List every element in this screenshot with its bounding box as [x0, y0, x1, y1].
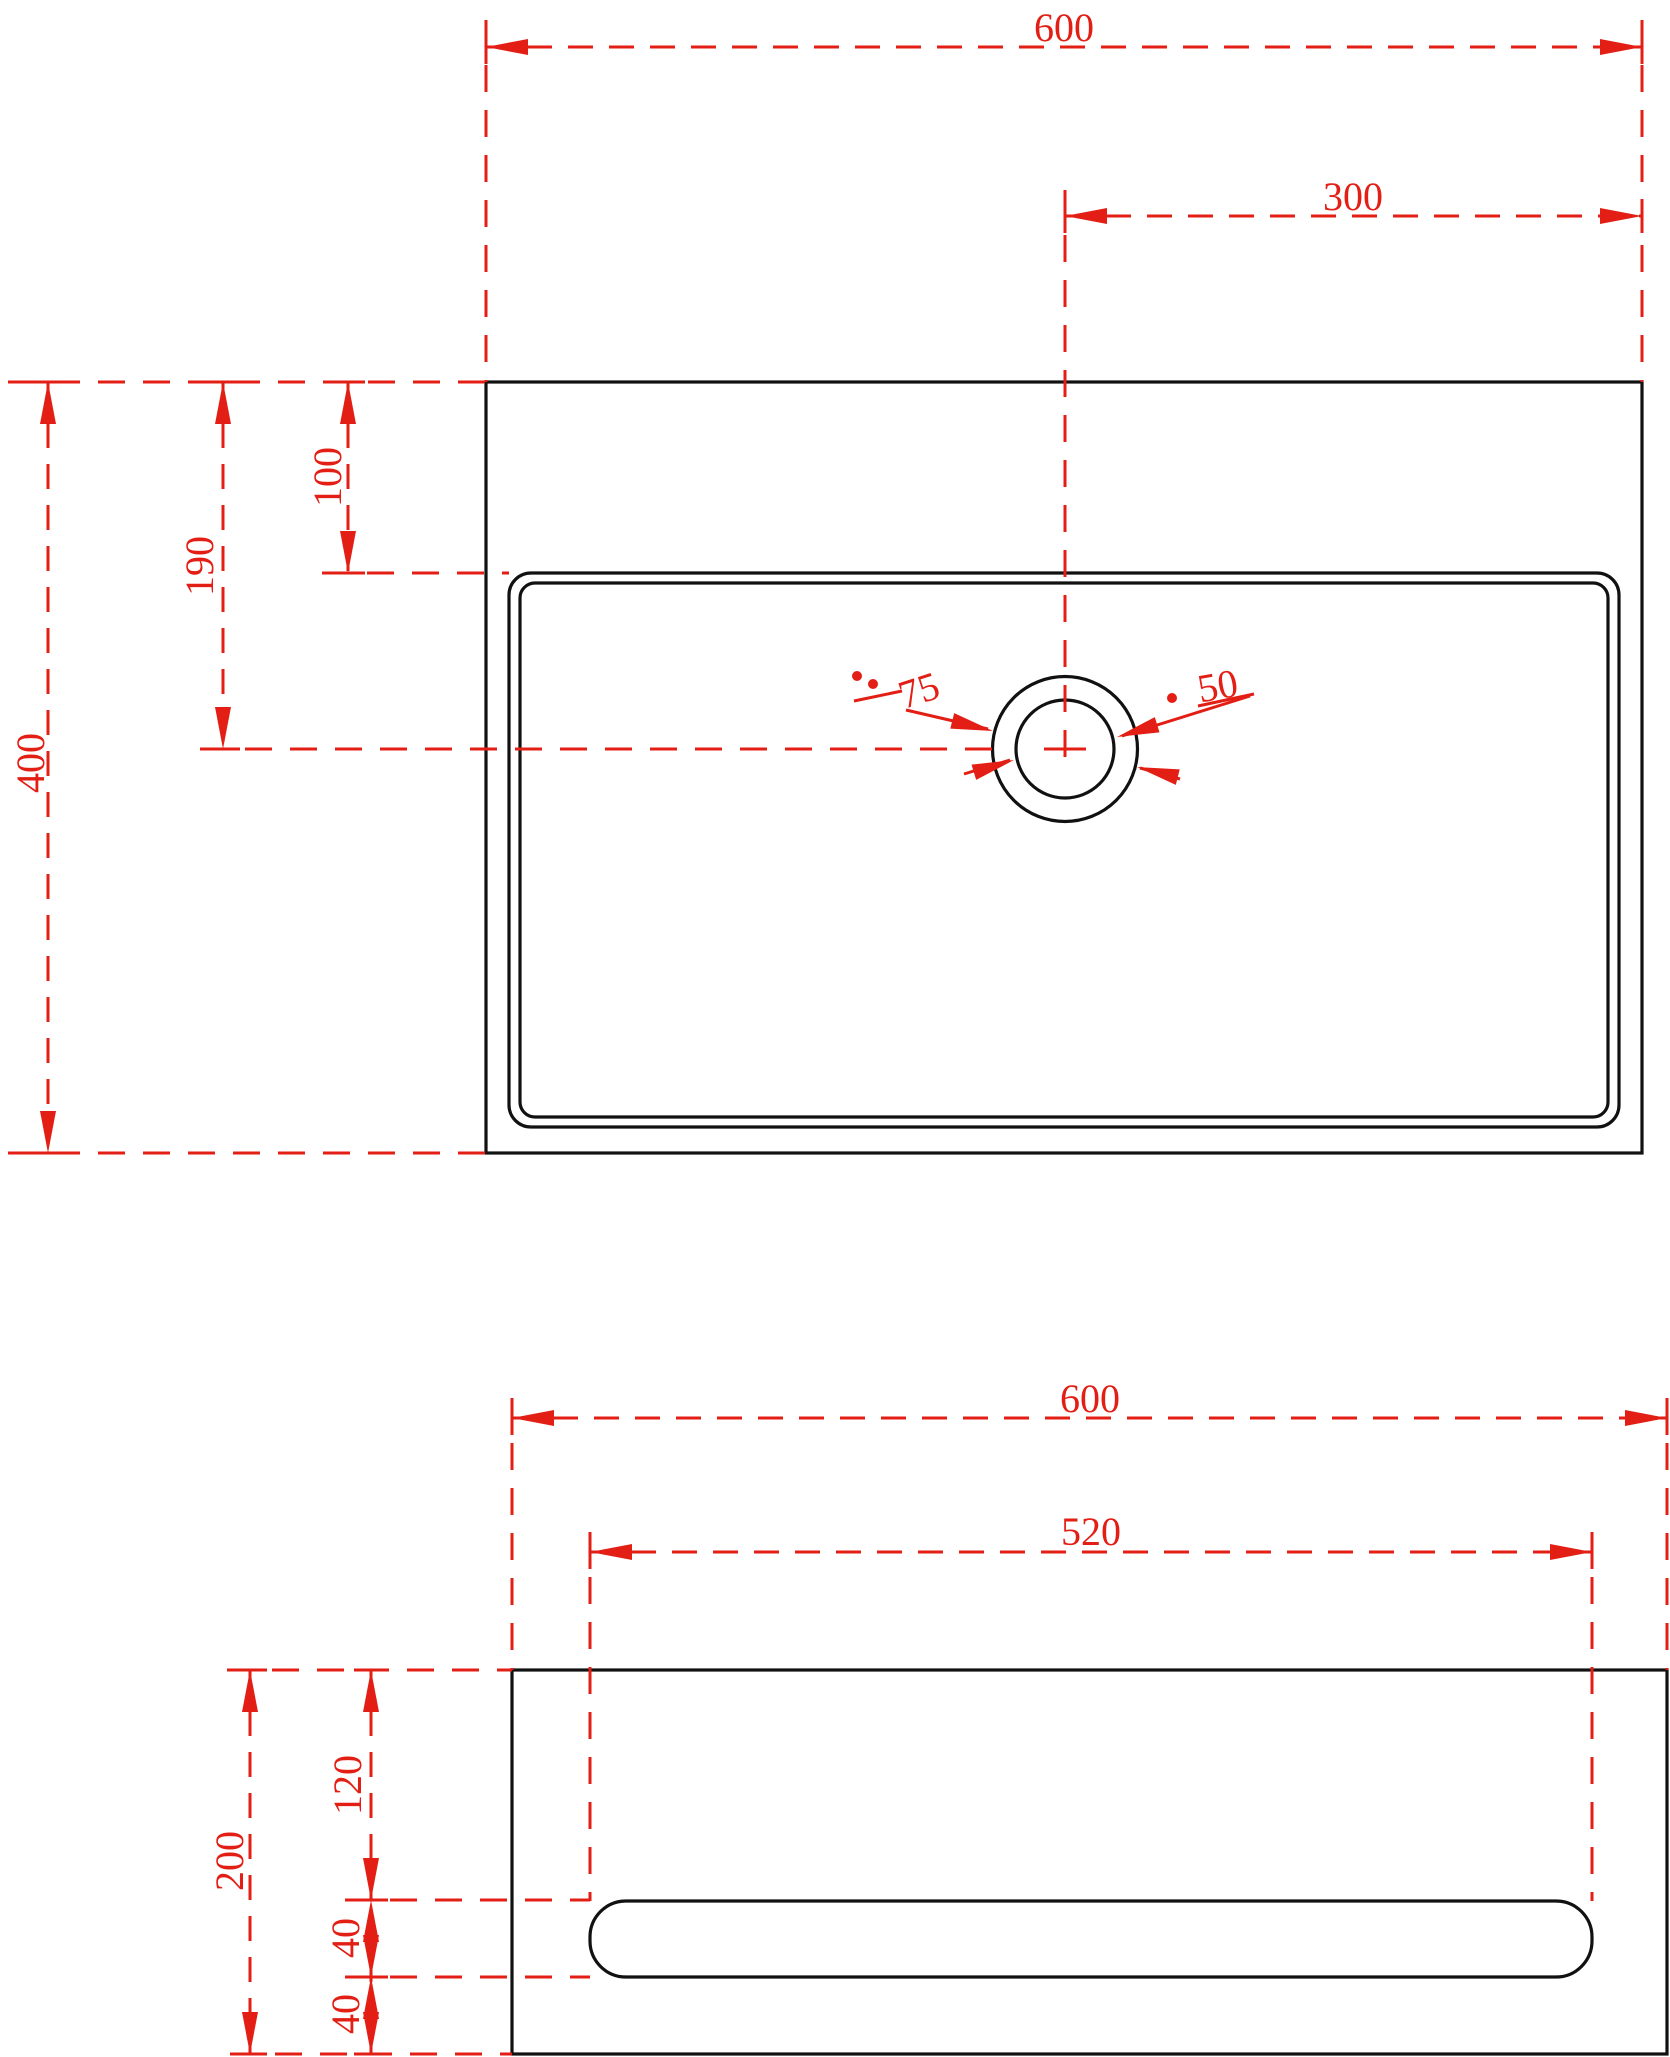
- dimension-arrowhead: [1600, 39, 1642, 55]
- dimension-arrowhead: [1625, 1410, 1667, 1426]
- label-drain-inner-diameter: 50: [1194, 660, 1241, 711]
- dimension-arrowhead: [242, 2012, 258, 2054]
- dimension-symbols: [31, 30, 1667, 2054]
- leader-underline-75: [854, 691, 902, 701]
- diameter-symbol-dot: [1167, 693, 1177, 703]
- label-slot-width: 520: [1061, 1509, 1121, 1554]
- dimension-arrowhead: [363, 1670, 379, 1712]
- extension-lines: [8, 20, 1667, 2054]
- label-drain-outer-diameter: 75: [893, 663, 945, 718]
- label-top-width: 600: [1034, 5, 1094, 50]
- dimension-arrowhead: [486, 39, 528, 55]
- top-view: [486, 382, 1642, 1153]
- dimension-arrowhead: [242, 1670, 258, 1712]
- dimension-arrowhead: [1550, 1544, 1592, 1560]
- label-front-height: 200: [207, 1831, 252, 1891]
- label-slot-from-top: 120: [325, 1755, 370, 1815]
- dimension-arrowhead: [40, 1111, 56, 1153]
- dimension-arrowhead: [40, 382, 56, 424]
- label-drain-from-top: 190: [177, 536, 222, 596]
- dimension-arrowhead: [215, 707, 231, 749]
- sink-technical-drawing: 600 300 400 190 100 75 50 600 520 200 12…: [0, 0, 1670, 2057]
- label-slot-from-bottom: 40: [323, 1994, 368, 2034]
- dimension-arrowhead: [590, 1544, 632, 1560]
- dimension-arrowhead: [363, 1858, 379, 1900]
- dimension-arrowhead: [512, 1410, 554, 1426]
- top-view-outer-outline: [486, 382, 1642, 1153]
- dimension-arrowhead: [340, 382, 356, 424]
- label-slot-height: 40: [323, 1918, 368, 1958]
- diameter-symbol-dot: [852, 671, 862, 681]
- label-rim-from-top: 100: [305, 447, 350, 507]
- dimension-arrowhead: [950, 713, 995, 739]
- label-front-width: 600: [1060, 1376, 1120, 1421]
- label-drain-offset: 300: [1323, 174, 1383, 219]
- dimension-lines: [48, 47, 1667, 2054]
- dimension-arrowhead: [215, 382, 231, 424]
- dimension-arrowhead: [340, 531, 356, 573]
- label-depth: 400: [8, 733, 53, 793]
- dimension-arrowhead: [1135, 759, 1180, 785]
- diameter-symbol-dot: [868, 679, 878, 689]
- front-slot: [590, 1901, 1592, 1977]
- dimension-labels: 600 300 400 190 100 75 50 600 520 200 12…: [8, 5, 1383, 2034]
- dimension-arrowhead: [1065, 208, 1107, 224]
- front-view: [512, 1670, 1667, 2054]
- technical-drawing-canvas: 600 300 400 190 100 75 50 600 520 200 12…: [0, 0, 1670, 2057]
- dimension-arrowhead: [1600, 208, 1642, 224]
- front-view-outline: [512, 1670, 1667, 2054]
